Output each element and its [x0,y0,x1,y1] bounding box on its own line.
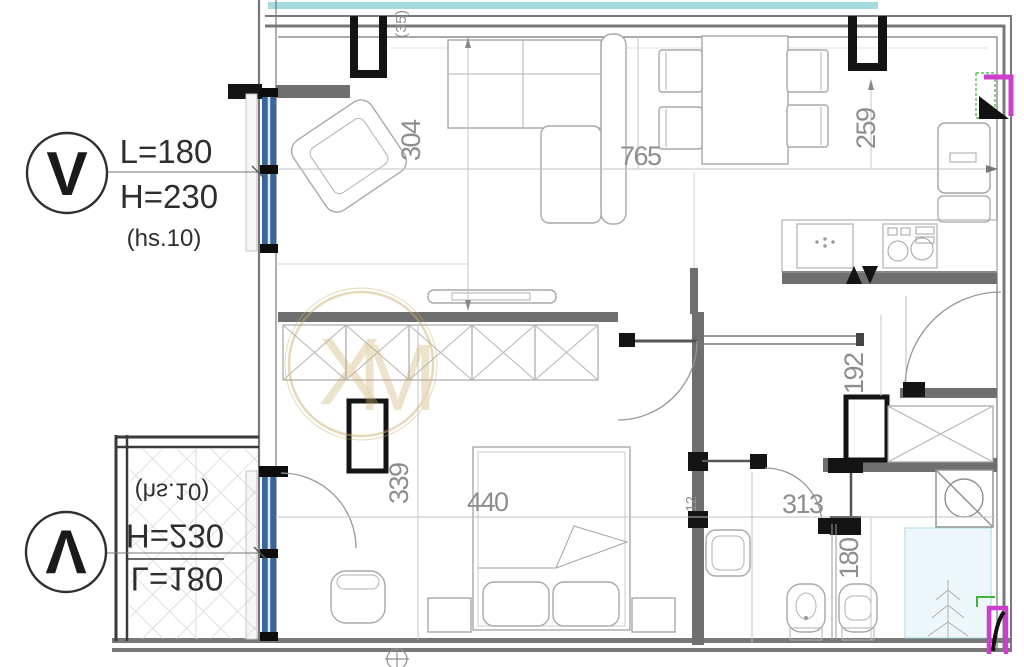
bath-shaft [846,397,887,460]
spec-symbol-top: V [46,140,87,209]
nightstand-left [428,598,471,632]
washbasin [706,472,752,643]
dim-partition: 12 [683,496,700,512]
pillow-left [483,582,549,626]
top-facade-cyan-strip [268,2,878,9]
spec-height-top: H=230 [120,178,218,215]
entry-wardrobe-x [888,406,993,462]
dim-living-depth: 304 [396,119,426,161]
double-bed [473,447,630,630]
fridge [938,123,990,222]
spec-note-top: (hs.10) [127,225,202,252]
bidet [787,584,825,640]
dim-entry-side: 192 [839,352,869,394]
spec-length-bottom: L=180 [131,561,224,598]
bedroom-door [618,333,697,420]
spec-height-bottom: H=230 [126,518,224,555]
floor-plan-drawing: V L=180 H=230 (hs.10) V (hs.10) H=230 L=… [0,0,1024,667]
balcony-door-arc [281,473,356,548]
dim-living-width: 765 [620,141,662,171]
dim-bed-wall: 440 [467,487,509,517]
spec-length-top: L=180 [120,133,213,170]
dim-kitchen-side: 259 [851,107,881,149]
nightstand-right [632,598,675,632]
spec-symbol-bottom: V [45,516,86,585]
dim-top-note: (35) [393,10,410,38]
entry-door [903,292,1001,397]
window-spec-top: V L=180 H=230 (hs.10) [27,133,264,252]
armchair [287,95,412,217]
dim-bath-side: 180 [834,537,864,579]
dim-bath-width: 313 [782,489,824,519]
tv-sideboard [428,290,556,303]
dining-table-set [659,36,828,164]
marker-top-right [976,73,1011,119]
sink-dots [815,237,834,247]
floor-plan-canvas: V L=180 H=230 (hs.10) V (hs.10) H=230 L=… [0,0,1024,667]
top-right-pillar [848,16,887,71]
shower [936,470,993,527]
pillow-right [553,582,619,626]
watermark-letter-m: M [358,325,437,431]
hallway [618,292,1001,462]
kitchen-backsplash-wall [782,271,997,284]
spec-note-bottom: (hs.10) [135,478,210,505]
corner-sofa [448,34,626,224]
pouf [331,571,385,623]
stove [883,224,937,268]
dim-bedroom-depth: 339 [384,462,414,504]
